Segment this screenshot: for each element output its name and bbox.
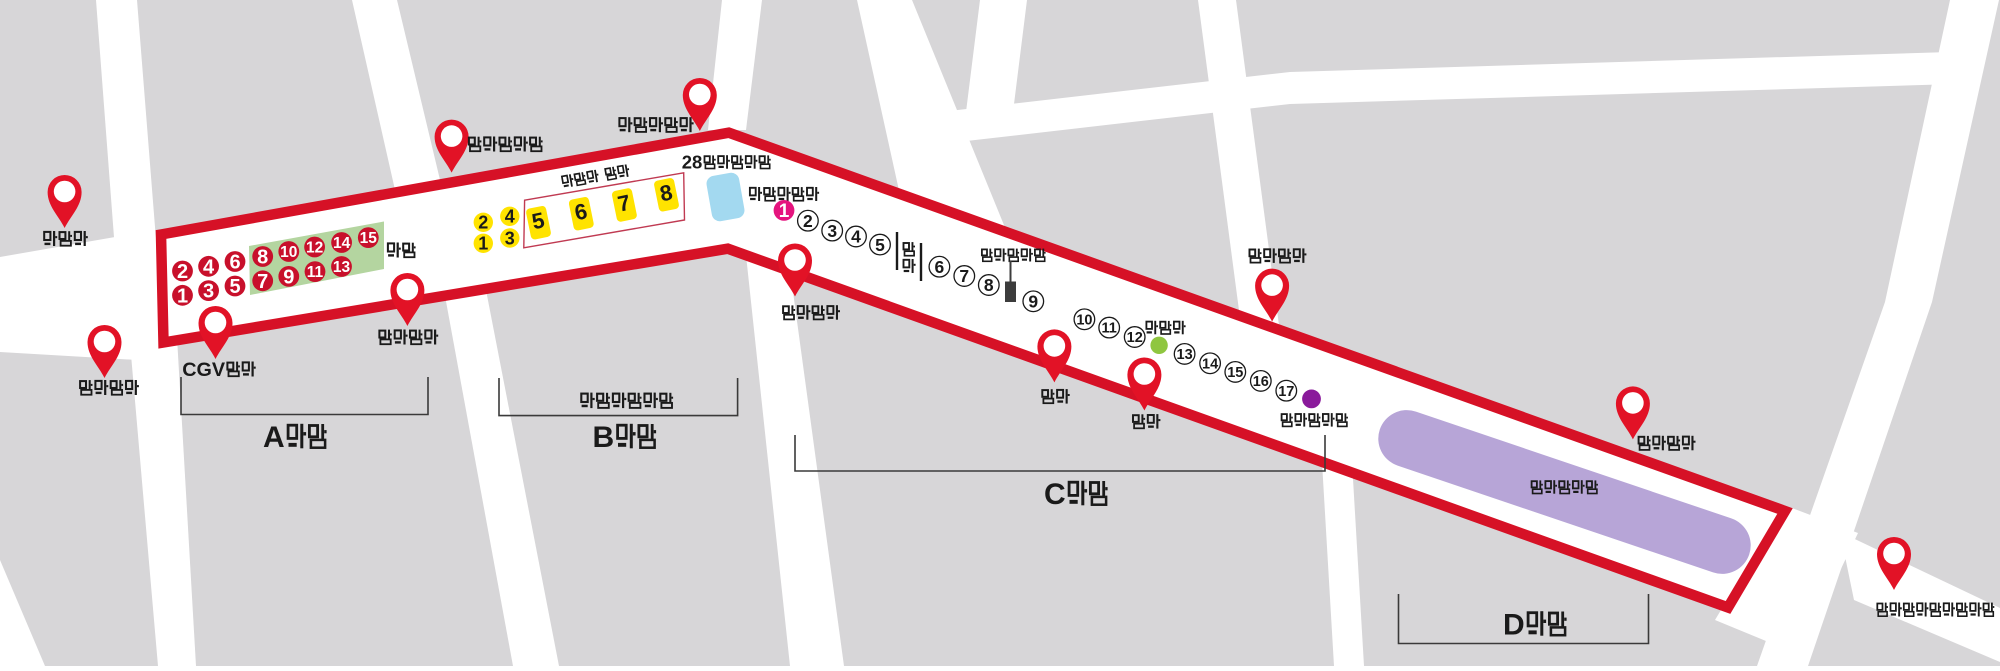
svg-text:7: 7 <box>959 266 969 286</box>
svg-text:28: 28 <box>682 152 703 173</box>
svg-text:9: 9 <box>283 267 294 289</box>
svg-text:15: 15 <box>360 230 378 247</box>
svg-text:3: 3 <box>827 221 837 241</box>
svg-text:15: 15 <box>1227 365 1243 381</box>
svg-text:3: 3 <box>203 281 214 303</box>
svg-text:2: 2 <box>803 211 813 231</box>
svg-text:4: 4 <box>851 227 861 247</box>
svg-text:12: 12 <box>1127 330 1143 346</box>
svg-text:14: 14 <box>333 235 351 252</box>
svg-text:10: 10 <box>280 244 297 261</box>
svg-text:7: 7 <box>257 271 268 293</box>
svg-text:8: 8 <box>984 275 994 295</box>
svg-text:6: 6 <box>229 252 240 274</box>
svg-text:1: 1 <box>177 285 188 307</box>
svg-text:11: 11 <box>307 264 324 281</box>
svg-text:5: 5 <box>229 276 240 298</box>
svg-text:C: C <box>1044 478 1066 511</box>
svg-text:A: A <box>263 421 285 454</box>
svg-text:5: 5 <box>875 235 885 255</box>
svg-text:4: 4 <box>505 207 515 227</box>
svg-text:1: 1 <box>779 201 790 222</box>
svg-text:13: 13 <box>333 259 351 276</box>
svg-text:17: 17 <box>1278 384 1294 400</box>
svg-text:16: 16 <box>1253 374 1269 390</box>
svg-text:B: B <box>593 421 615 454</box>
svg-text:3: 3 <box>505 228 515 248</box>
svg-text:12: 12 <box>306 240 323 257</box>
svg-text:6: 6 <box>935 257 945 277</box>
svg-text:9: 9 <box>1028 292 1038 312</box>
svg-text:2: 2 <box>177 261 188 283</box>
svg-text:CGV: CGV <box>182 359 226 381</box>
svg-text:13: 13 <box>1177 347 1193 363</box>
svg-text:10: 10 <box>1076 312 1092 328</box>
svg-text:8: 8 <box>257 247 268 269</box>
svg-text:2: 2 <box>478 213 488 233</box>
svg-text:4: 4 <box>203 256 215 278</box>
svg-text:11: 11 <box>1102 321 1117 337</box>
svg-text:1: 1 <box>478 234 488 254</box>
svg-text:D: D <box>1503 608 1525 641</box>
svg-text:14: 14 <box>1202 356 1218 372</box>
